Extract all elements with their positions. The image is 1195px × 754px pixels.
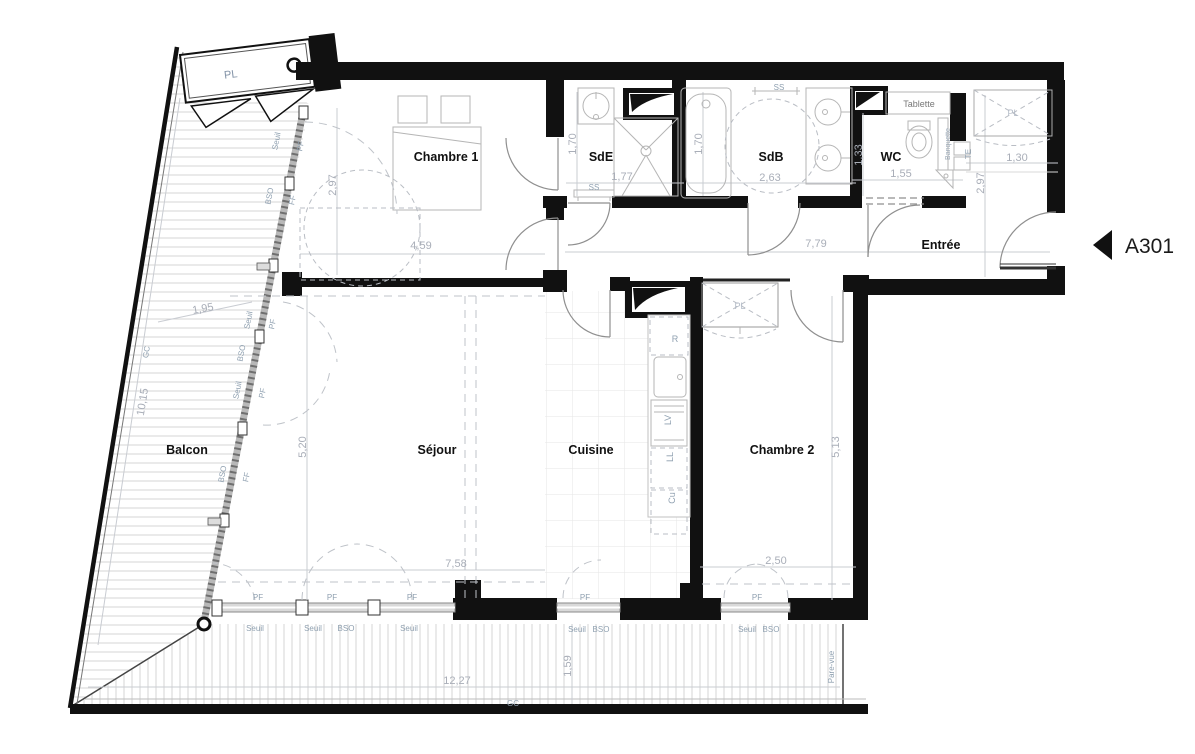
terrace-area (72, 624, 866, 706)
duct-cuisine-icon (625, 281, 692, 318)
duct-wc-icon (850, 86, 888, 115)
dim-terrasse-h: 1,59 (562, 655, 574, 676)
dim-terrasse-w: 12,27 (443, 675, 471, 687)
dim-sde-w: 1,77 (611, 171, 632, 183)
svg-text:Seuil: Seuil (304, 624, 322, 633)
room-label-chambre1: Chambre 1 (414, 150, 479, 164)
svg-text:BSO: BSO (593, 625, 610, 634)
svg-text:Seuil: Seuil (400, 624, 418, 633)
room-label-wc: WC (881, 150, 902, 164)
svg-text:R: R (672, 334, 679, 344)
dim-sejour-h: 5,20 (297, 436, 309, 457)
room-label-chambre2: Chambre 2 (750, 443, 815, 457)
svg-text:Seuil: Seuil (738, 625, 756, 634)
room-label-sde: SdE (589, 150, 613, 164)
dim-chambre2-h: 5,13 (830, 436, 842, 457)
svg-text:PF: PF (752, 593, 762, 602)
dim-sejour-w: 7,58 (445, 558, 466, 570)
room-label-entree: Entrée (922, 238, 961, 252)
unit-id-label: A301 (1125, 235, 1174, 258)
tag-te: TE (964, 149, 973, 159)
svg-text:Cu: Cu (667, 492, 677, 504)
svg-text:PF: PF (253, 593, 263, 602)
svg-text:PF: PF (327, 593, 337, 602)
dim-wc-w: 1,55 (890, 168, 911, 180)
svg-text:BSO: BSO (763, 625, 780, 634)
tag-pare-vue: Pare-vue (827, 650, 836, 683)
room-label-balcon: Balcon (166, 443, 208, 457)
tag-pl-chambre2: PL (734, 301, 745, 311)
dim-couloir: 7,79 (805, 238, 826, 250)
dim-chambre2-w: 2,50 (765, 555, 786, 567)
svg-text:FF: FF (241, 471, 252, 482)
svg-text:LV: LV (663, 415, 673, 425)
corner-post (198, 618, 210, 630)
svg-text:Seuil: Seuil (246, 624, 264, 633)
dim-entree-h: 2,97 (975, 172, 987, 193)
tag-ss-sde: SS (589, 183, 600, 192)
dim-sde-h: 1,70 (567, 133, 579, 154)
duct-sde-icon (623, 88, 680, 120)
svg-text:PF: PF (407, 593, 417, 602)
tag-ss-sdb: SS (774, 83, 785, 92)
tag-tablette: Tablette (903, 99, 935, 109)
svg-text:GC: GC (507, 699, 519, 708)
room-label-sdb: SdB (759, 150, 784, 164)
room-label-sejour: Séjour (418, 443, 457, 457)
room-label-cuisine: Cuisine (568, 443, 613, 457)
svg-text:FF: FF (287, 194, 298, 205)
svg-text:BSO: BSO (338, 624, 355, 633)
dim-entree-w: 1,30 (1006, 152, 1027, 164)
svg-text:Seuil: Seuil (568, 625, 586, 634)
dim-wc-h: 1,33 (853, 144, 865, 165)
dim-chambre1-h: 2,97 (327, 174, 339, 195)
floor-plan-a301: PL (0, 0, 1195, 754)
tag-pl-entree: PL (1007, 108, 1018, 118)
dim-chambre1-w: 4,59 (410, 240, 431, 252)
svg-text:LL: LL (665, 452, 675, 462)
svg-text:GC: GC (141, 345, 152, 358)
svg-text:PF: PF (580, 593, 590, 602)
closet-pl-label: PL (223, 68, 238, 82)
dim-sdb-h: 1,70 (693, 133, 705, 154)
tag-banquette: Banquette (945, 128, 952, 160)
dim-sdb-w: 2,63 (759, 172, 780, 184)
